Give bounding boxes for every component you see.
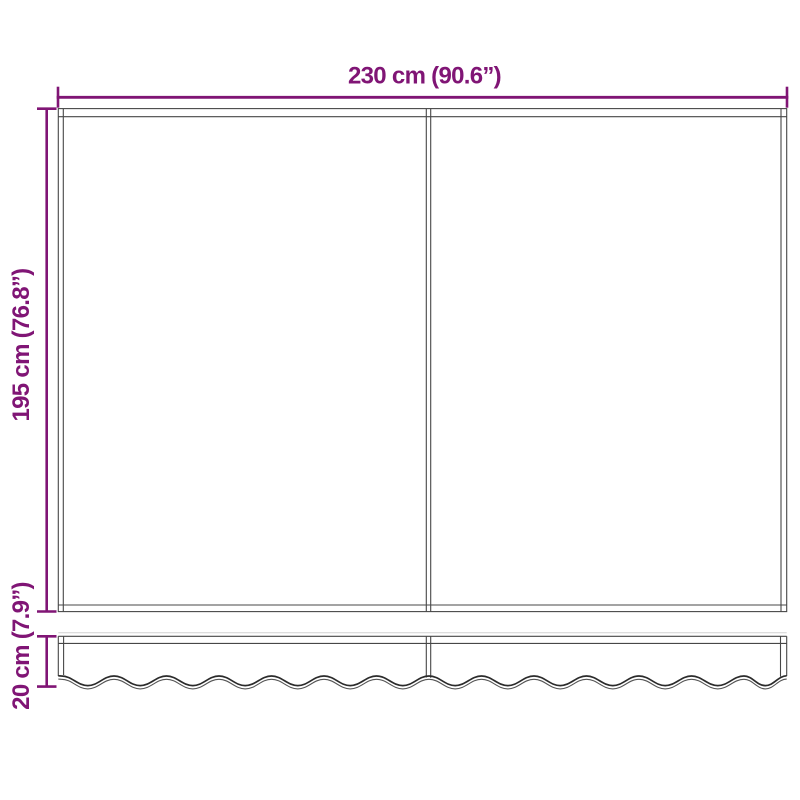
svg-text:230 cm (90.6”): 230 cm (90.6”) xyxy=(348,63,501,90)
svg-text:195 cm (76.8”): 195 cm (76.8”) xyxy=(8,269,35,422)
svg-text:20 cm (7.9”): 20 cm (7.9”) xyxy=(8,582,35,710)
